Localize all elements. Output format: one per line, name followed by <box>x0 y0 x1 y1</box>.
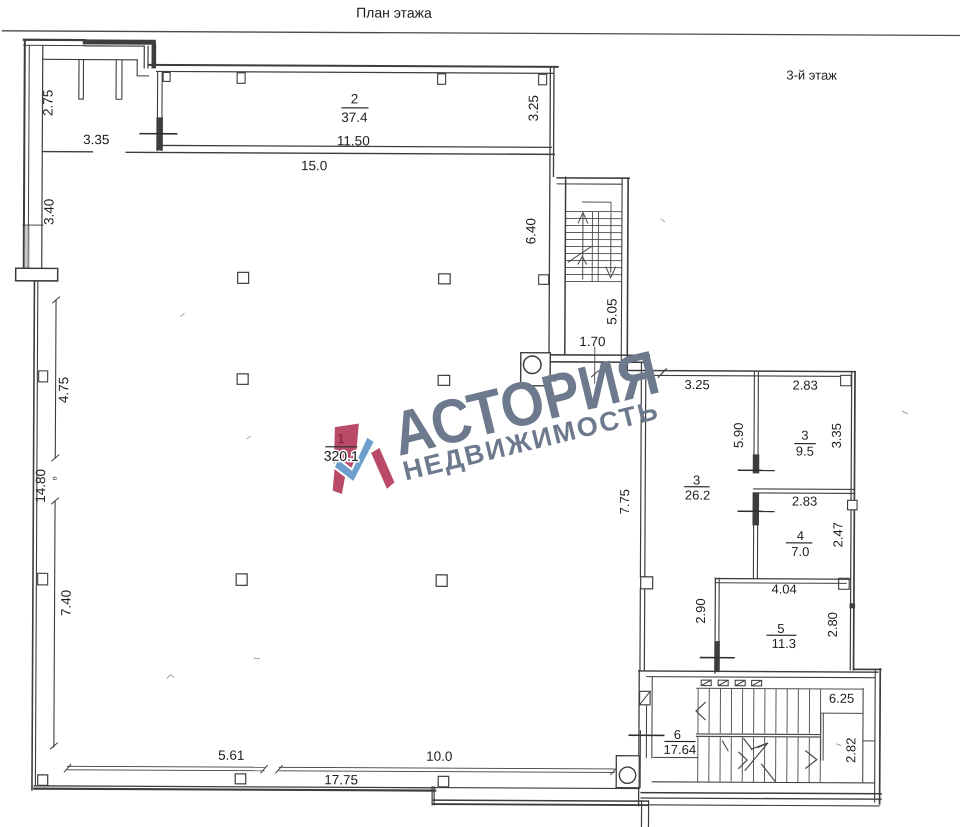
svg-text:11.3: 11.3 <box>772 636 796 651</box>
svg-text:2.83: 2.83 <box>792 378 817 393</box>
svg-text:6: 6 <box>674 727 681 742</box>
svg-text:2.83: 2.83 <box>792 494 817 509</box>
svg-text:17.75: 17.75 <box>324 772 358 787</box>
svg-text:План этажа: План этажа <box>356 4 432 20</box>
svg-text:37.4: 37.4 <box>341 110 368 125</box>
svg-text:4.75: 4.75 <box>56 377 71 403</box>
svg-text:10.0: 10.0 <box>426 749 452 764</box>
svg-text:7.0: 7.0 <box>791 544 809 559</box>
svg-text:17.64: 17.64 <box>664 742 697 757</box>
svg-text:3: 3 <box>693 473 700 488</box>
svg-text:5.61: 5.61 <box>218 748 244 763</box>
svg-text:2.80: 2.80 <box>825 612 840 637</box>
svg-text:o: o <box>52 476 59 480</box>
svg-text:3: 3 <box>801 428 808 443</box>
svg-text:2.47: 2.47 <box>830 522 845 547</box>
svg-text:3.25: 3.25 <box>526 95 541 121</box>
svg-text:1: 1 <box>337 431 345 446</box>
svg-text:3.25: 3.25 <box>684 377 709 392</box>
svg-text:3.35: 3.35 <box>829 423 844 448</box>
svg-text:2.75: 2.75 <box>40 90 55 116</box>
svg-text:3.40: 3.40 <box>41 199 56 225</box>
svg-text:5.90: 5.90 <box>731 423 746 448</box>
svg-text:320.1: 320.1 <box>324 448 359 464</box>
svg-text:7.75: 7.75 <box>617 489 632 514</box>
svg-text:5.05: 5.05 <box>604 298 619 324</box>
svg-text:3.35: 3.35 <box>83 132 109 147</box>
svg-text:6.40: 6.40 <box>523 218 538 244</box>
svg-text:2: 2 <box>351 91 359 106</box>
svg-text:2.90: 2.90 <box>693 598 708 623</box>
svg-text:4: 4 <box>797 528 804 543</box>
svg-text:26.2: 26.2 <box>685 488 710 503</box>
svg-text:6.25: 6.25 <box>829 691 854 706</box>
svg-text:3-й этаж: 3-й этаж <box>786 67 837 82</box>
svg-text:11.50: 11.50 <box>337 133 370 148</box>
svg-text:1.70: 1.70 <box>579 334 605 349</box>
svg-text:5: 5 <box>777 621 784 636</box>
svg-text:14.80: 14.80 <box>33 469 48 503</box>
svg-text:9.5: 9.5 <box>796 444 814 459</box>
svg-text:7.40: 7.40 <box>59 590 74 616</box>
svg-text:4.04: 4.04 <box>771 581 796 596</box>
svg-text:2.82: 2.82 <box>843 738 858 763</box>
svg-text:15.0: 15.0 <box>301 158 327 173</box>
